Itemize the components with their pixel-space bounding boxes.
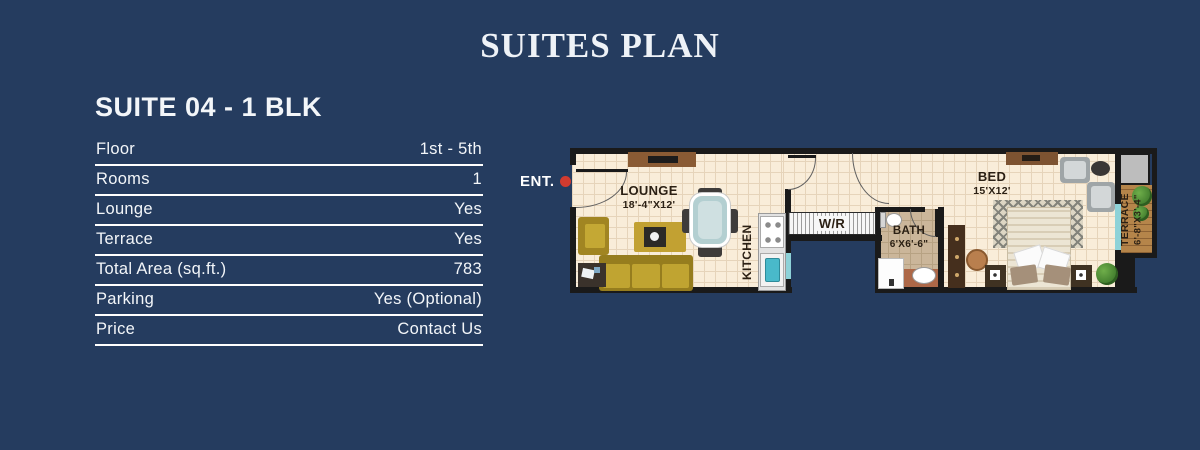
- spec-row-floor: Floor 1st - 5th: [95, 137, 483, 166]
- shower: [878, 258, 904, 289]
- spec-label: Terrace: [96, 230, 153, 249]
- terrace-label: TERRACE 6'-8"X3'-4": [1119, 189, 1151, 251]
- tv-console: [628, 152, 696, 167]
- nightstand-left: [985, 265, 1006, 287]
- spec-label: Lounge: [96, 200, 153, 219]
- stove: [760, 216, 784, 248]
- spec-value: 1: [473, 170, 482, 189]
- suite-heading: SUITE 04 - 1 BLK: [95, 92, 483, 123]
- spec-value: 783: [454, 260, 482, 279]
- cushion: [1043, 264, 1071, 285]
- bed: [1007, 207, 1071, 290]
- kitchen-sink: [765, 258, 780, 282]
- wardrobe-rack: W/R: [788, 212, 876, 235]
- lounge-chair-grey: [1087, 182, 1115, 212]
- armchair: [578, 217, 609, 255]
- wardrobe-label: W/R: [815, 215, 849, 231]
- service-shaft: [1119, 153, 1150, 185]
- entrance-marker-dot: [560, 176, 571, 187]
- dining-table: [690, 193, 730, 247]
- sink-unit: [760, 253, 784, 287]
- bed-name: BED: [962, 169, 1022, 185]
- wall-terrace-right: [1152, 148, 1157, 258]
- bath-sink-icon: [912, 267, 936, 284]
- spec-value: Yes: [454, 230, 482, 249]
- bath-name: BATH: [880, 225, 938, 239]
- page-title: SUITES PLAN: [0, 26, 1200, 66]
- wall-left-lower: [570, 207, 576, 293]
- entrance-label: ENT.: [520, 173, 555, 190]
- spec-label: Rooms: [96, 170, 150, 189]
- wall-step-corner: [1115, 253, 1135, 293]
- sofa: [599, 255, 693, 291]
- tray: [644, 227, 666, 247]
- round-side-table: [1091, 161, 1110, 176]
- spec-row-price: Price Contact Us: [95, 317, 483, 346]
- spec-row-terrace: Terrace Yes: [95, 227, 483, 256]
- lounge-size: 18'-4"X12': [604, 199, 694, 212]
- nightstand-right: [1071, 265, 1092, 287]
- floor-plan: ENT.: [520, 145, 1180, 305]
- bath-label: BATH 6'X6'-6": [880, 225, 938, 251]
- spec-row-parking: Parking Yes (Optional): [95, 287, 483, 316]
- spec-value: 1st - 5th: [420, 140, 482, 159]
- cushion: [1010, 264, 1038, 285]
- dresser: [948, 225, 965, 288]
- lounge-name: LOUNGE: [604, 183, 694, 199]
- lounge-label: LOUNGE 18'-4"X12': [604, 183, 694, 211]
- coffee-table: [634, 222, 686, 252]
- spec-label: Total Area (sq.ft.): [96, 260, 226, 279]
- terrace-name: TERRACE: [1119, 189, 1133, 251]
- spec-label: Parking: [96, 290, 154, 309]
- terrace-size: 6'-8"X3'-4": [1133, 189, 1145, 251]
- spec-value: Contact Us: [397, 320, 482, 339]
- wall-bedroom-bottom: [875, 287, 1137, 293]
- suite-spec-panel: SUITE 04 - 1 BLK Floor 1st - 5th Rooms 1…: [95, 92, 483, 346]
- bath-size: 6'X6'-6": [880, 239, 938, 251]
- wall-corridor-bottom: [783, 235, 882, 241]
- kitchen-label: KITCHEN: [740, 217, 756, 287]
- side-table: [578, 263, 606, 287]
- spec-label: Floor: [96, 140, 135, 159]
- spec-row-lounge: Lounge Yes: [95, 197, 483, 226]
- bed-size: 15'X12': [962, 185, 1022, 198]
- bedroom-dresser: [1006, 152, 1058, 165]
- bed-label: BED 15'X12': [962, 169, 1022, 197]
- lamp-icon: [1076, 270, 1086, 280]
- spec-row-total-area: Total Area (sq.ft.) 783: [95, 257, 483, 286]
- magazine: [581, 268, 595, 279]
- wall-left-upper: [570, 148, 576, 165]
- plant: [1096, 263, 1118, 285]
- spec-row-rooms: Rooms 1: [95, 167, 483, 196]
- spec-value: Yes: [454, 200, 482, 219]
- lounge-chair-grey: [1060, 157, 1090, 183]
- tv: [648, 156, 678, 163]
- entrance-label-group: ENT.: [520, 173, 571, 190]
- lamp-icon: [990, 270, 1000, 280]
- spec-label: Price: [96, 320, 135, 339]
- spec-value: Yes (Optional): [374, 290, 482, 309]
- wall-bath-right: [938, 207, 944, 293]
